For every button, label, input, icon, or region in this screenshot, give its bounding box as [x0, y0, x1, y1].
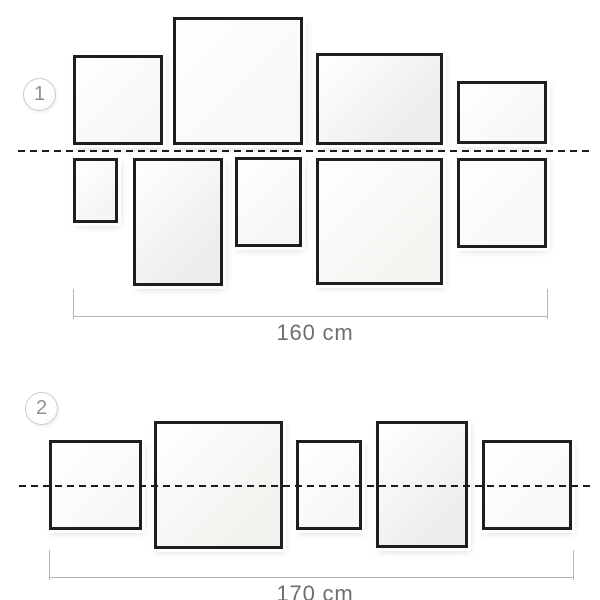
hanging-alignment-line-1: [18, 150, 593, 152]
measure-tick-left-2: [49, 550, 50, 580]
measure-line-1: [73, 316, 547, 317]
picture-frame: [73, 55, 163, 145]
picture-frame: [457, 81, 547, 144]
hanging-alignment-line-2: [19, 485, 593, 487]
picture-frame: [73, 158, 118, 223]
picture-frame: [316, 53, 443, 145]
group-2-number: 2: [36, 397, 47, 420]
picture-frame: [133, 158, 223, 286]
picture-frame: [316, 158, 443, 285]
measure-line-2: [49, 577, 573, 578]
measure-label-1: 160 cm: [277, 320, 354, 346]
group-1-number: 1: [34, 83, 45, 106]
measure-tick-left-1: [73, 289, 74, 319]
measure-tick-right-1: [547, 289, 548, 319]
measure-tick-right-2: [573, 550, 574, 580]
gallery-hanging-diagram: 1 160 cm 2 170 cm: [0, 0, 600, 600]
picture-frame: [235, 157, 302, 247]
measure-label-2: 170 cm: [277, 581, 354, 600]
picture-frame: [173, 17, 303, 145]
group-1-number-badge: 1: [23, 78, 56, 111]
group-2-number-badge: 2: [25, 392, 58, 425]
picture-frame: [457, 158, 547, 248]
